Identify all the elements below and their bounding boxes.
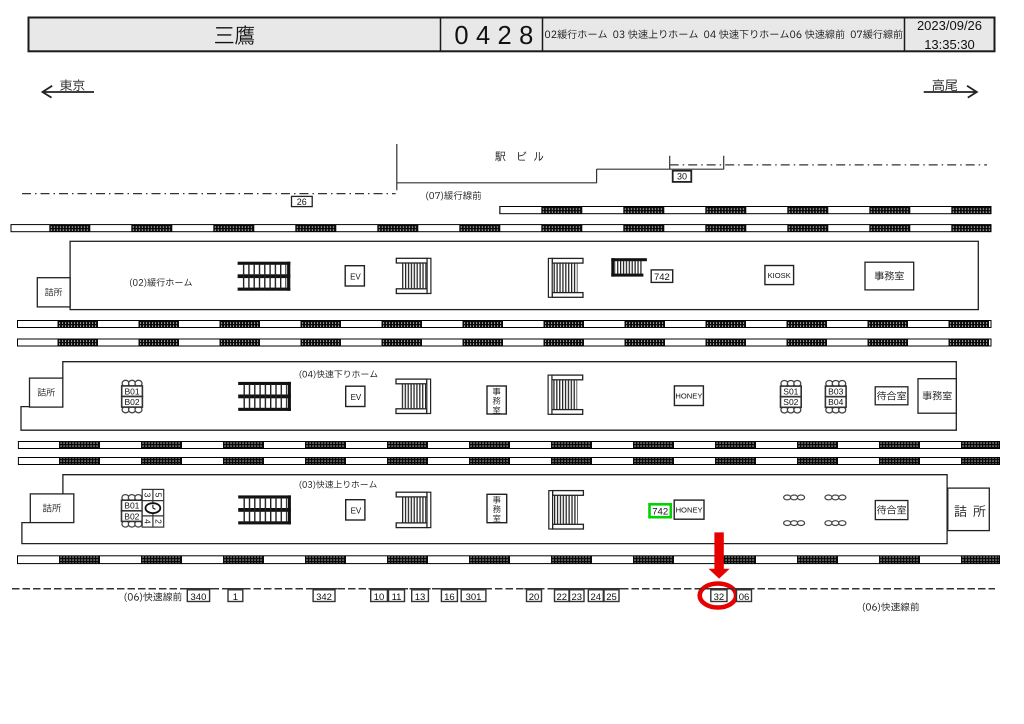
svg-text:342: 342 — [316, 592, 332, 603]
svg-text:20: 20 — [529, 592, 540, 603]
svg-text:26: 26 — [297, 197, 307, 207]
svg-text:06: 06 — [739, 592, 750, 603]
svg-text:340: 340 — [191, 592, 207, 603]
svg-text:5: 5 — [153, 493, 163, 498]
svg-text:B04: B04 — [828, 397, 843, 407]
svg-text:EV: EV — [350, 272, 361, 281]
svg-text:1: 1 — [233, 592, 238, 603]
svg-text:10: 10 — [374, 592, 385, 603]
svg-text:HONEY: HONEY — [675, 392, 702, 401]
svg-text:24: 24 — [591, 592, 602, 603]
svg-text:742: 742 — [654, 272, 670, 283]
svg-text:4: 4 — [143, 519, 153, 524]
svg-text:B03: B03 — [828, 387, 843, 397]
svg-text:HONEY: HONEY — [676, 506, 703, 515]
svg-text:B02: B02 — [124, 397, 139, 407]
svg-text:13:35:30: 13:35:30 — [924, 37, 975, 52]
svg-text:EV: EV — [351, 393, 362, 402]
svg-text:2023/09/26: 2023/09/26 — [917, 18, 982, 33]
svg-text:EV: EV — [351, 506, 362, 515]
svg-text:16: 16 — [444, 592, 455, 603]
svg-text:30: 30 — [677, 172, 687, 182]
svg-text:B01: B01 — [124, 501, 139, 511]
svg-text:11: 11 — [392, 592, 402, 603]
svg-text:S02: S02 — [783, 397, 798, 407]
svg-text:25: 25 — [606, 592, 617, 603]
svg-text:3: 3 — [143, 493, 153, 498]
svg-text:742: 742 — [652, 507, 668, 518]
svg-text:B01: B01 — [124, 386, 139, 396]
svg-text:KIOSK: KIOSK — [768, 271, 791, 280]
svg-text:B02: B02 — [124, 511, 139, 521]
svg-text:13: 13 — [415, 592, 426, 603]
svg-text:32: 32 — [714, 592, 725, 603]
svg-text:S01: S01 — [783, 387, 798, 397]
svg-text:22: 22 — [556, 592, 567, 603]
svg-text:0428: 0428 — [454, 22, 540, 50]
svg-text:2: 2 — [153, 519, 163, 524]
svg-text:23: 23 — [571, 592, 582, 603]
svg-text:301: 301 — [466, 592, 482, 603]
